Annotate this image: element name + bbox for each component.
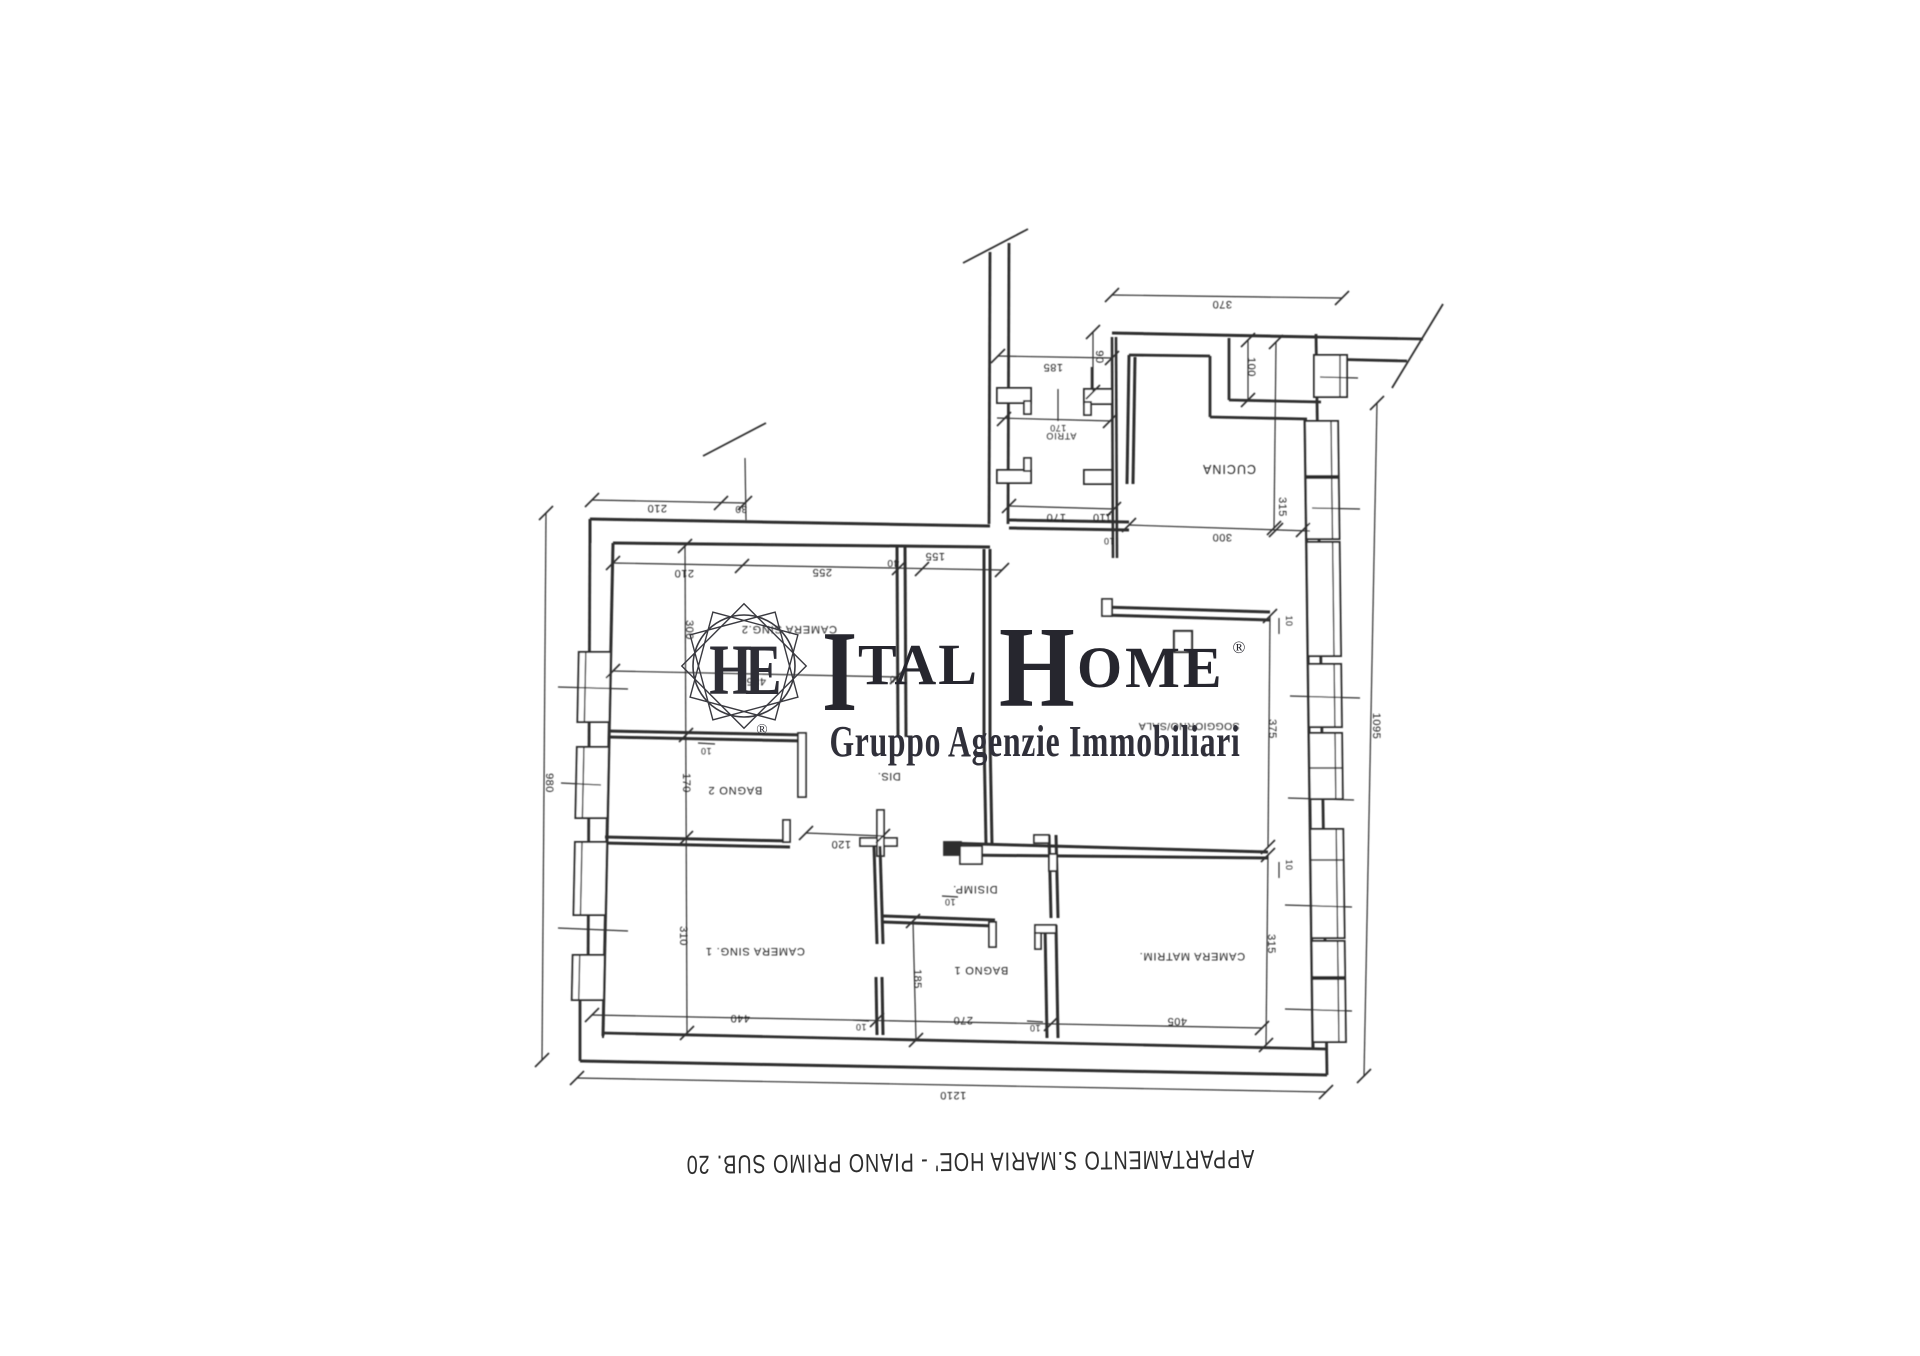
svg-text:BAGNO 1: BAGNO 1 [954,964,1009,976]
svg-text:10: 10 [700,746,711,756]
svg-text:375: 375 [1266,719,1278,739]
svg-text:110: 110 [1092,511,1111,523]
svg-text:10: 10 [1029,1023,1040,1033]
svg-text:370: 370 [1212,298,1232,310]
svg-text:310: 310 [677,926,689,946]
svg-text:DISIMP.: DISIMP. [952,883,997,895]
svg-text:Gruppo Agenzie Immobiliari: Gruppo Agenzie Immobiliari [829,718,1240,766]
svg-text:40: 40 [887,557,899,568]
svg-text:300: 300 [683,620,695,640]
svg-text:210: 210 [647,502,667,514]
svg-text:CUCINA: CUCINA [1202,462,1256,476]
svg-text:315: 315 [1276,497,1288,517]
svg-text:10: 10 [1103,536,1114,546]
svg-text:300: 300 [1212,531,1232,543]
svg-text:OME: OME [1077,635,1225,700]
svg-text:DIS.: DIS. [877,770,900,782]
svg-text:405: 405 [1167,1015,1187,1027]
svg-text:120: 120 [831,838,851,850]
svg-text:90: 90 [1093,350,1105,363]
svg-text:210: 210 [674,567,694,579]
svg-text:440: 440 [730,1012,750,1024]
svg-text:270: 270 [953,1014,973,1026]
svg-text:255: 255 [812,566,832,578]
svg-text:®: ® [756,722,767,738]
svg-text:H: H [999,604,1075,732]
svg-text:CAMERA MATRIM.: CAMERA MATRIM. [1139,950,1245,962]
svg-text:315: 315 [1265,934,1277,954]
svg-text:170: 170 [680,773,692,793]
svg-text:980: 980 [543,773,555,793]
svg-text:BAGNO 2: BAGNO 2 [708,784,763,796]
svg-text:TAL: TAL [858,632,979,697]
svg-text:CAMERA SING. 1: CAMERA SING. 1 [705,945,805,957]
svg-text:30: 30 [735,503,747,514]
svg-text:10: 10 [944,897,955,907]
svg-text:10: 10 [855,1022,866,1032]
svg-text:10: 10 [1284,615,1294,626]
svg-text:100: 100 [1245,357,1257,377]
svg-text:APPARTAMENTO S.MARIA HOE' - PI: APPARTAMENTO S.MARIA HOE' - PIANO PRIMO … [686,1144,1255,1179]
svg-text:10: 10 [1284,859,1294,870]
svg-text:185: 185 [1043,361,1063,373]
svg-text:185: 185 [911,969,923,989]
svg-text:I: I [822,606,857,735]
svg-text:1210: 1210 [940,1089,966,1101]
svg-text:HE: HE [709,630,779,710]
svg-text:®: ® [1233,638,1246,657]
svg-text:155: 155 [925,550,945,562]
svg-text:ATRIO: ATRIO [1046,431,1077,441]
svg-text:1095: 1095 [1370,713,1382,739]
svg-text:170: 170 [1046,511,1066,523]
